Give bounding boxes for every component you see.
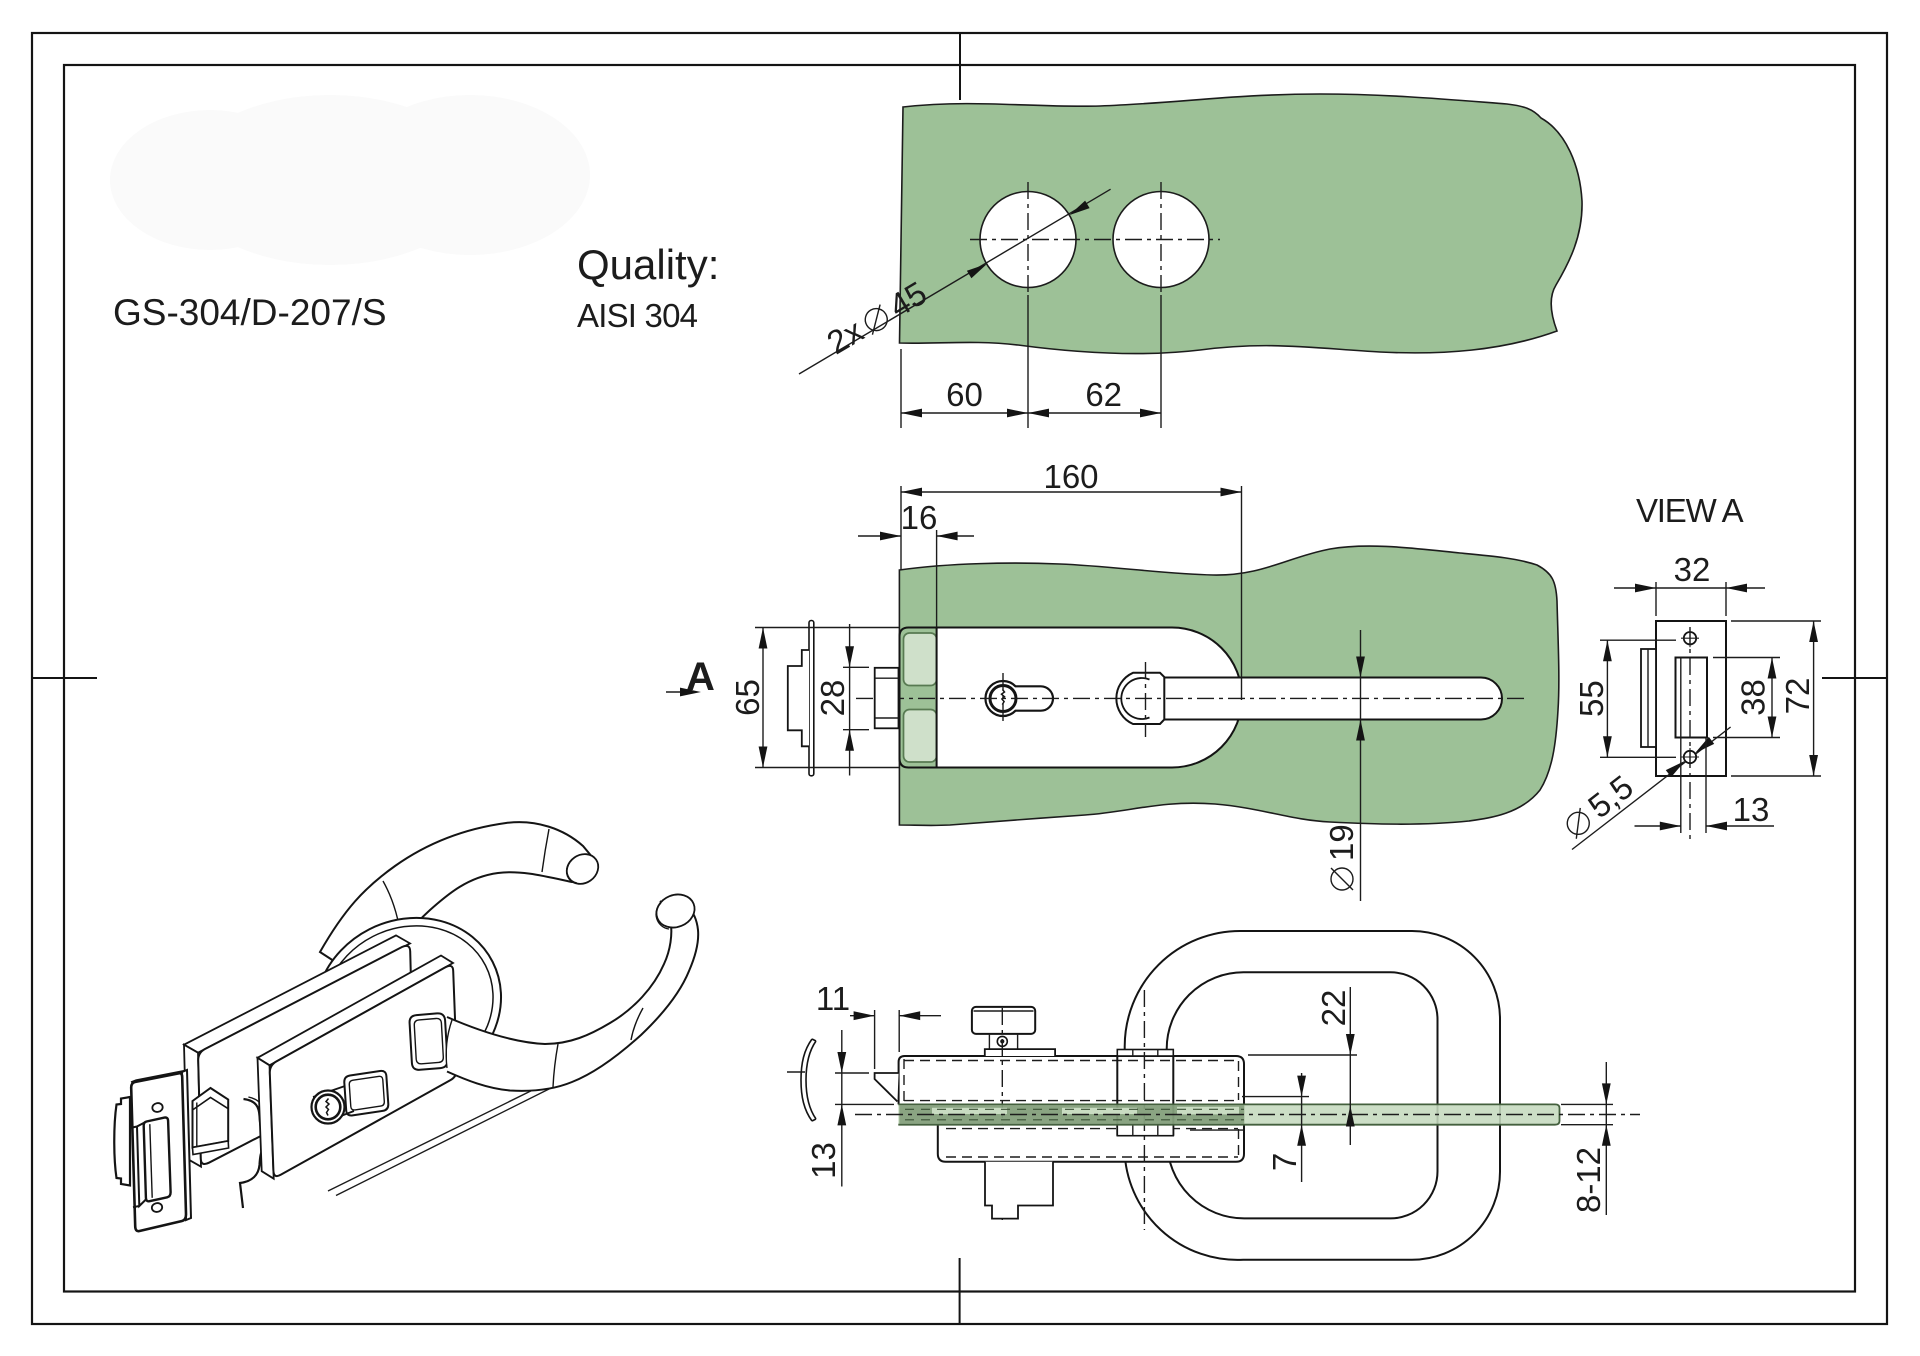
svg-text:11: 11 [816,980,850,1017]
svg-text:AISI 304: AISI 304 [577,297,698,334]
svg-text:160: 160 [1043,458,1098,495]
svg-text:65: 65 [729,679,766,716]
svg-text:13: 13 [805,1142,842,1179]
svg-text:60: 60 [946,376,983,413]
svg-text:7: 7 [1266,1153,1303,1171]
svg-text:Quality:: Quality: [577,241,719,288]
svg-text:GS-304/D-207/S: GS-304/D-207/S [113,292,387,333]
svg-text:72: 72 [1779,678,1816,715]
svg-text:16: 16 [901,499,938,536]
svg-text:62: 62 [1085,376,1122,413]
svg-text:19: 19 [1323,824,1360,861]
svg-text:22: 22 [1315,990,1352,1027]
svg-text:28: 28 [814,680,851,717]
svg-text:13: 13 [1733,791,1770,828]
svg-text:38: 38 [1735,679,1772,716]
svg-text:32: 32 [1674,551,1711,588]
svg-text:8-12: 8-12 [1570,1147,1607,1213]
svg-text:55: 55 [1573,680,1610,717]
svg-text:VIEW A: VIEW A [1636,492,1744,529]
